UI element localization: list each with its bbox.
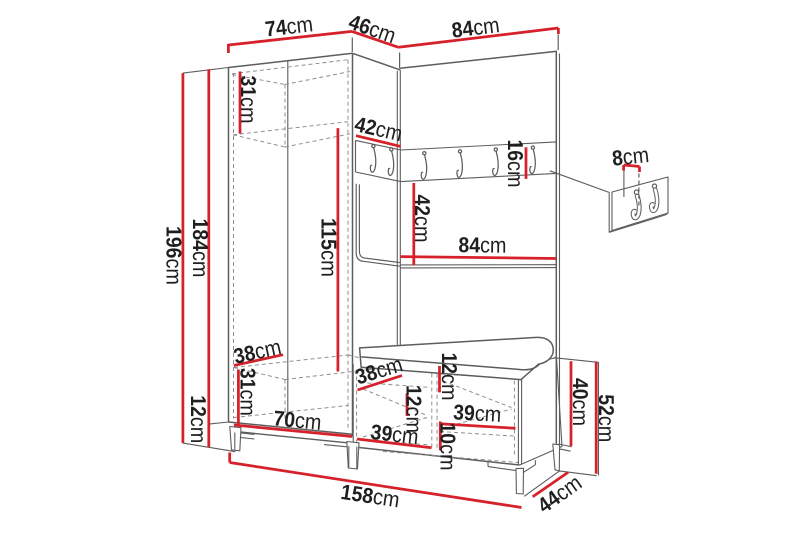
svg-text:8cm: 8cm	[611, 142, 650, 171]
svg-text:196cm: 196cm	[162, 226, 187, 285]
svg-text:84cm: 84cm	[458, 232, 506, 258]
svg-text:184cm: 184cm	[188, 218, 213, 277]
svg-text:42cm: 42cm	[410, 195, 435, 243]
svg-text:12cm: 12cm	[186, 395, 211, 443]
svg-text:10cm: 10cm	[436, 423, 461, 471]
svg-text:115cm: 115cm	[316, 218, 341, 277]
svg-text:31cm: 31cm	[235, 368, 260, 416]
svg-text:16cm: 16cm	[503, 140, 528, 188]
svg-text:70cm: 70cm	[272, 405, 322, 435]
svg-text:40cm: 40cm	[568, 378, 593, 426]
svg-text:52cm: 52cm	[594, 394, 619, 442]
svg-text:12cm: 12cm	[437, 353, 462, 401]
svg-text:31cm: 31cm	[236, 76, 261, 124]
